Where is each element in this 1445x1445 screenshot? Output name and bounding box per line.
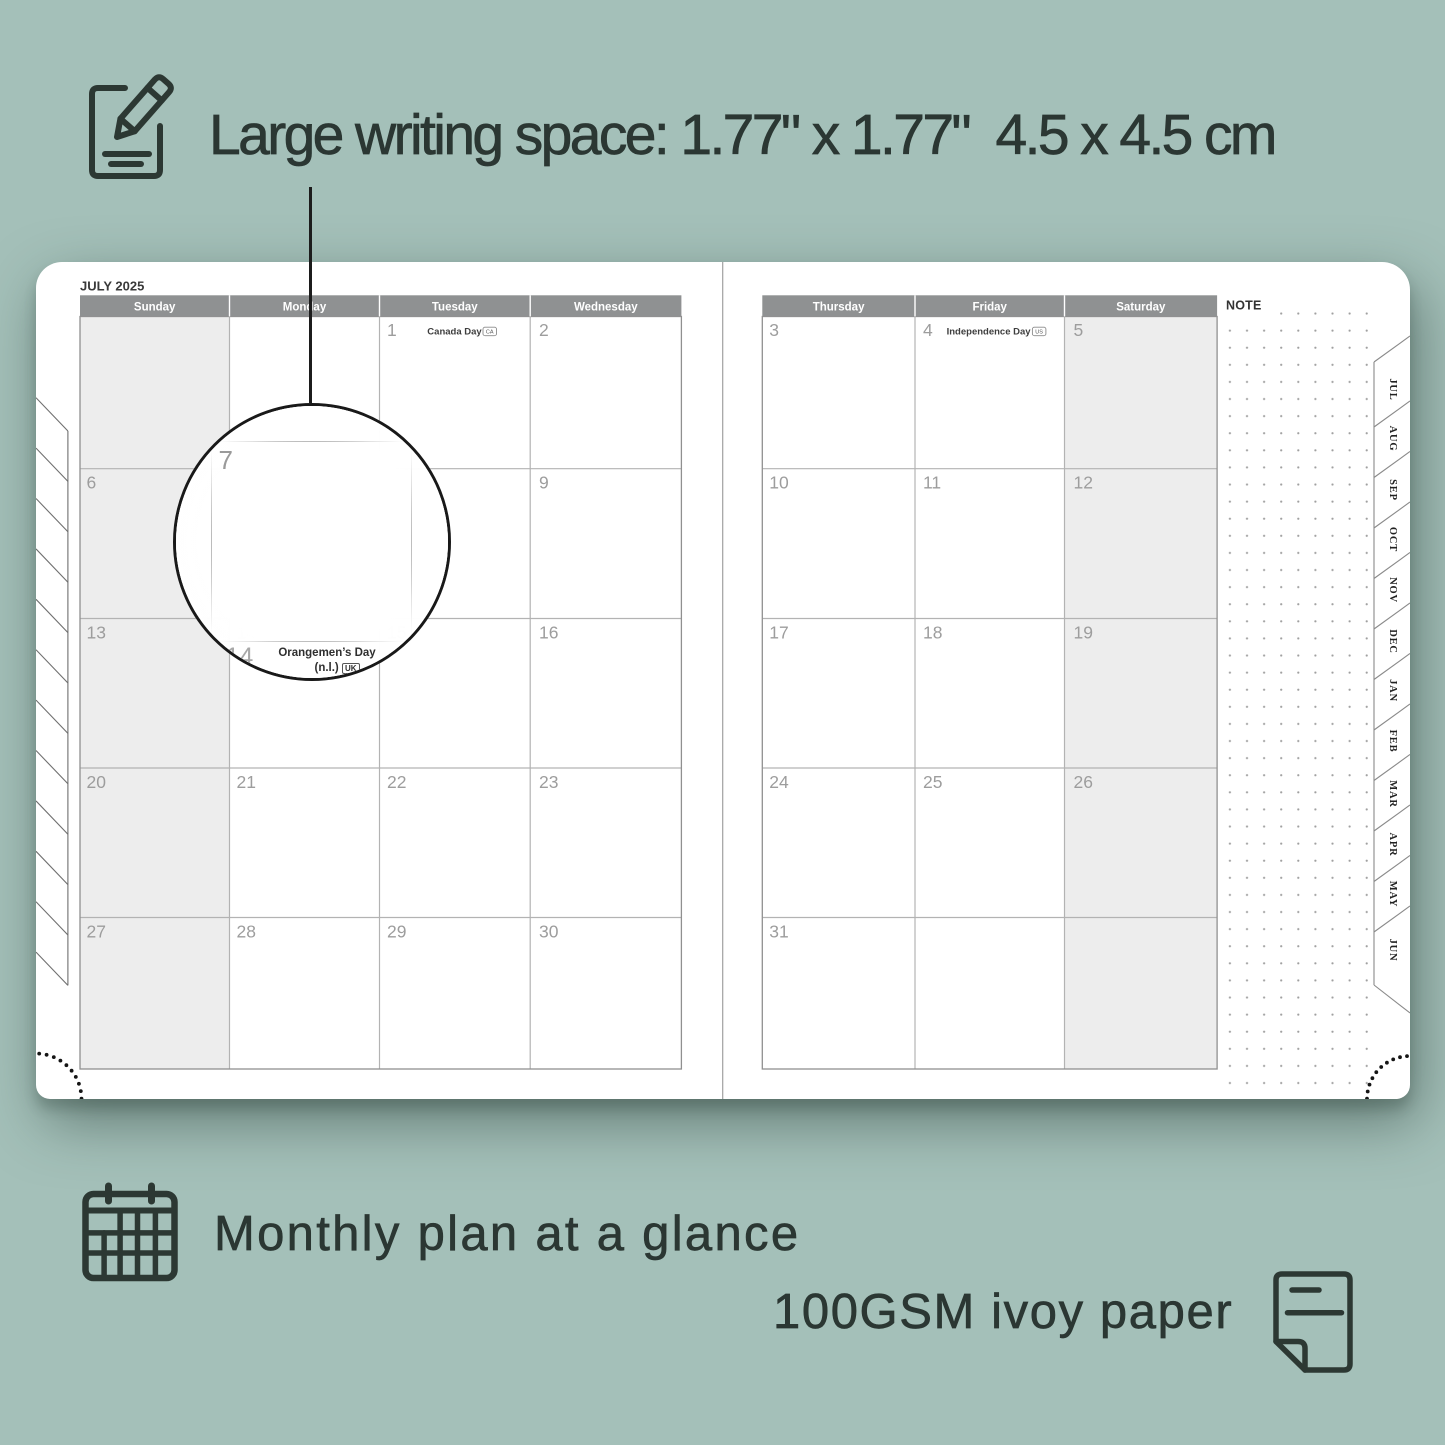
svg-text:CA: CA	[486, 330, 494, 336]
svg-text:24: 24	[769, 772, 789, 792]
svg-text:Independence Day: Independence Day	[947, 327, 1032, 338]
svg-text:2: 2	[539, 320, 549, 340]
svg-text:JUN: JUN	[1387, 939, 1398, 962]
svg-text:Monday: Monday	[283, 302, 327, 314]
svg-text:29: 29	[387, 922, 406, 942]
svg-text:10: 10	[769, 473, 789, 493]
svg-text:27: 27	[87, 922, 106, 942]
svg-text:1: 1	[387, 320, 397, 340]
svg-text:11: 11	[923, 473, 941, 493]
svg-text:Friday: Friday	[972, 302, 1007, 314]
svg-text:17: 17	[769, 623, 788, 643]
svg-text:OCT: OCT	[1387, 527, 1398, 552]
svg-text:18: 18	[923, 623, 942, 643]
svg-text:NOV: NOV	[1387, 577, 1398, 603]
svg-text:Sunday: Sunday	[134, 302, 176, 314]
svg-text:20: 20	[87, 772, 107, 792]
svg-text:3: 3	[769, 320, 779, 340]
svg-text:Tuesday: Tuesday	[432, 302, 478, 314]
svg-text:25: 25	[923, 772, 942, 792]
svg-text:9: 9	[539, 473, 549, 493]
svg-text:FEB: FEB	[1387, 730, 1398, 753]
svg-text:5: 5	[1074, 320, 1084, 340]
svg-text:MAR: MAR	[1387, 780, 1398, 807]
svg-text:DEC: DEC	[1387, 629, 1398, 654]
svg-text:26: 26	[1074, 772, 1093, 792]
svg-text:Wednesday: Wednesday	[574, 302, 638, 314]
svg-text:23: 23	[539, 772, 558, 792]
svg-text:Thursday: Thursday	[813, 302, 865, 314]
svg-text:13: 13	[87, 623, 106, 643]
svg-text:21: 21	[237, 772, 256, 792]
svg-text:19: 19	[1074, 623, 1093, 643]
svg-text:30: 30	[539, 922, 559, 942]
svg-text:22: 22	[387, 772, 406, 792]
svg-text:Canada Day: Canada Day	[427, 327, 482, 338]
svg-text:AUG: AUG	[1387, 426, 1398, 452]
svg-text:Saturday: Saturday	[1116, 302, 1166, 314]
svg-text:NOTE: NOTE	[1226, 299, 1262, 313]
svg-text:16: 16	[539, 623, 558, 643]
svg-text:US: US	[1035, 330, 1043, 336]
svg-text:JAN: JAN	[1387, 679, 1398, 702]
svg-text:JULY 2025: JULY 2025	[80, 279, 144, 294]
svg-text:12: 12	[1074, 473, 1093, 493]
svg-text:31: 31	[769, 922, 788, 942]
svg-text:4: 4	[923, 320, 933, 340]
svg-text:MAY: MAY	[1387, 881, 1398, 908]
svg-text:SEP: SEP	[1387, 479, 1398, 501]
svg-text:APR: APR	[1387, 833, 1398, 857]
svg-text:JUL: JUL	[1387, 378, 1398, 400]
svg-text:28: 28	[237, 922, 256, 942]
svg-text:6: 6	[87, 473, 97, 493]
